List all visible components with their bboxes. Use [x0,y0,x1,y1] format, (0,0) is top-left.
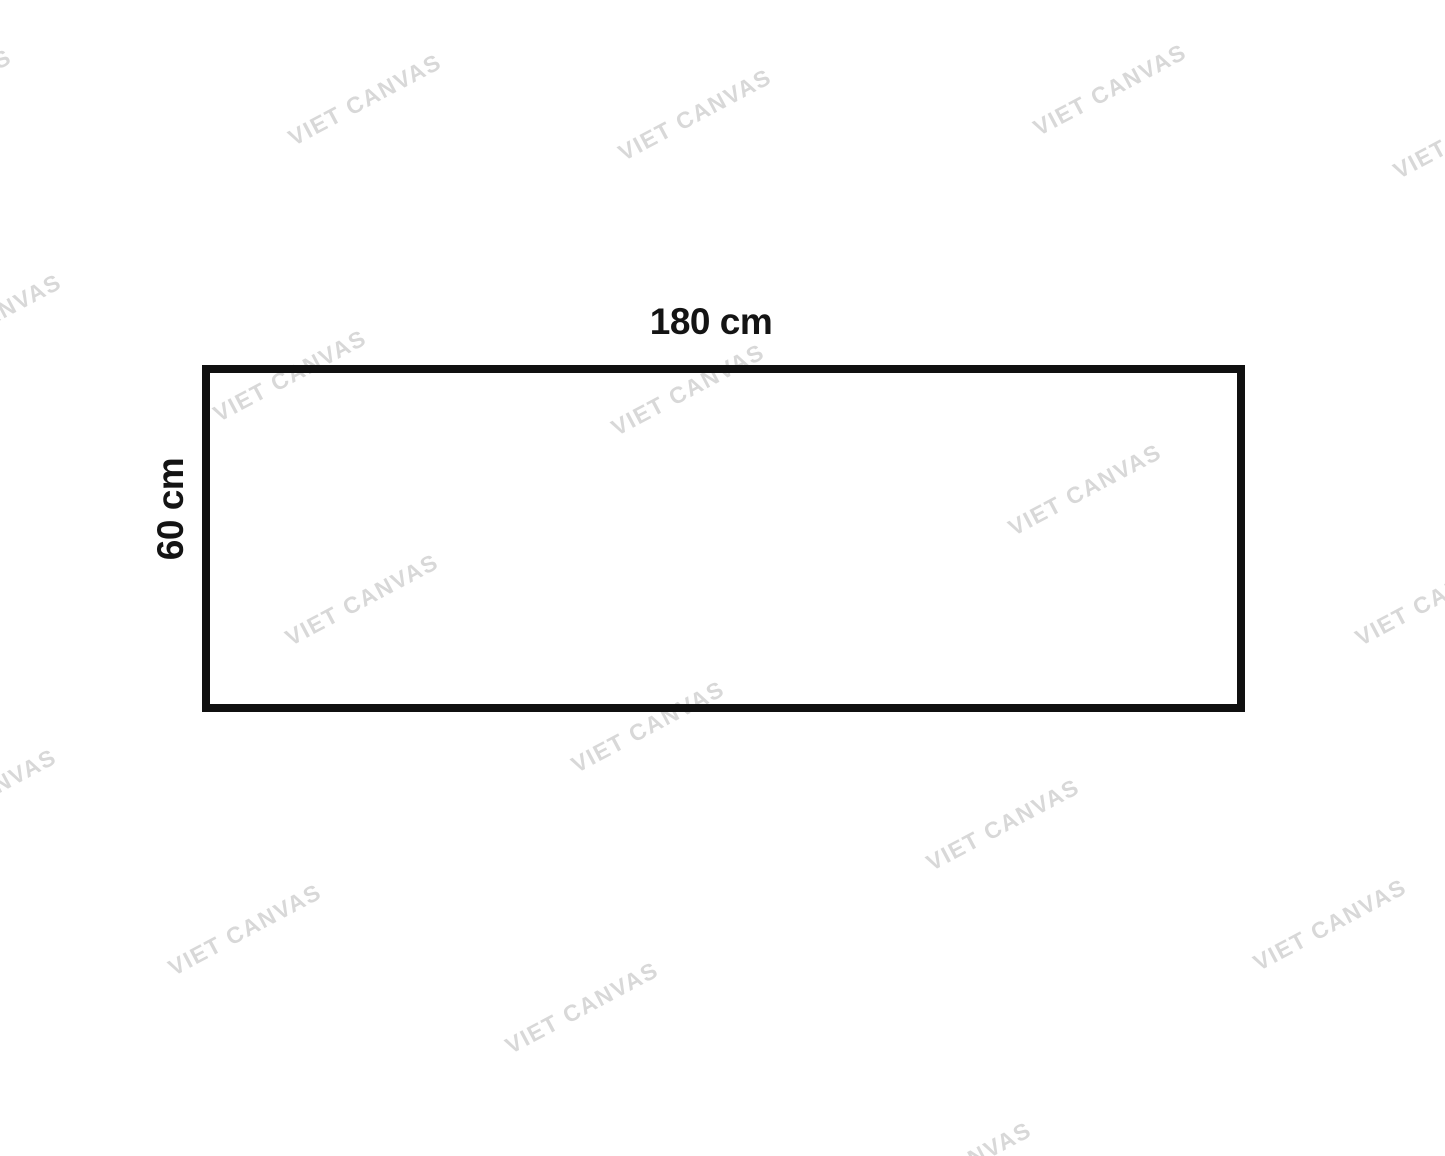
watermark-text: VIET CANVAS [874,1116,1036,1156]
watermark-text: VIET CANVAS [501,956,663,1059]
watermark-text: VIET CANVAS [922,773,1084,876]
watermark-text: VIET CANVAS [1351,548,1445,651]
watermark-text: VIET CANVAS [0,743,61,846]
width-dimension-label: 180 cm [650,301,773,343]
watermark-text: VIET CANVAS [0,268,66,371]
watermark-text: VIET CANVAS [1249,873,1411,976]
watermark-text: VIET CANVAS [1389,81,1445,184]
canvas-frame-rectangle [202,365,1245,712]
height-dimension-label: 60 cm [150,458,192,560]
watermark-text: VIET CANVAS [164,878,326,981]
watermark-text: VIET CANVAS [614,63,776,166]
watermark-text: VIET CANVAS [284,48,446,151]
watermark-text: VIET CANVAS [0,43,16,146]
canvas-size-diagram: VIET CANVASVIET CANVASVIET CANVASVIET CA… [0,0,1445,1156]
watermark-text: VIET CANVAS [1029,38,1191,141]
